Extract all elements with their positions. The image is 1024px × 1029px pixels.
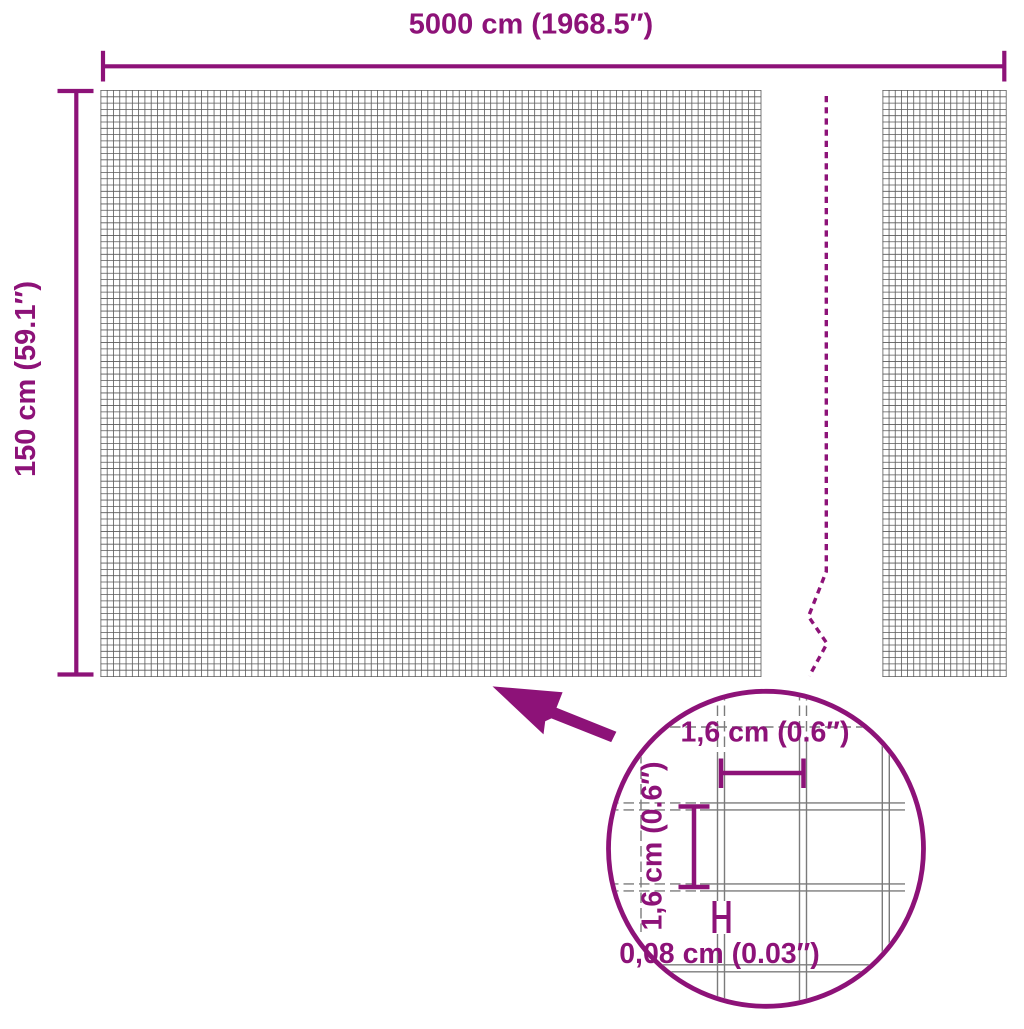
svg-text:1,6 cm (0.6″): 1,6 cm (0.6″) — [681, 717, 850, 749]
svg-text:1,6 cm (0.6″): 1,6 cm (0.6″) — [637, 762, 669, 931]
svg-text:150 cm (59.1″): 150 cm (59.1″) — [10, 281, 42, 477]
svg-text:5000 cm (1968.5″): 5000 cm (1968.5″) — [409, 8, 653, 40]
svg-text:0,08 cm (0.03″): 0,08 cm (0.03″) — [619, 938, 820, 970]
